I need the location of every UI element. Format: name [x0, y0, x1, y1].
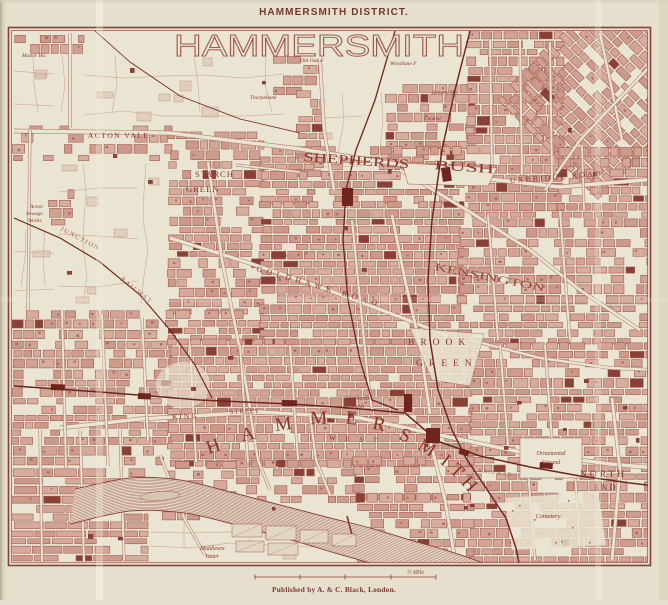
svg-text:M: M [274, 413, 293, 436]
svg-text:Manor Ho.: Manor Ho. [21, 53, 46, 59]
svg-text:STREET: STREET [230, 408, 260, 416]
svg-text:Bush: Bush [352, 404, 364, 410]
svg-text:Thorpebank: Thorpebank [250, 95, 277, 101]
svg-text:NORTH: NORTH [580, 470, 627, 480]
svg-text:Ground: Ground [542, 460, 561, 466]
svg-text:BROOK: BROOK [408, 338, 471, 348]
svg-text:KING: KING [172, 411, 199, 421]
svg-text:Cemetery: Cemetery [536, 513, 561, 520]
svg-text:½ Mile: ½ Mile [407, 569, 424, 576]
svg-text:Middlesex: Middlesex [199, 546, 225, 552]
svg-text:E: E [345, 408, 358, 430]
svg-text:Ornamental: Ornamental [537, 451, 566, 457]
svg-text:Sewage: Sewage [26, 211, 43, 217]
svg-text:Old Oak F: Old Oak F [300, 58, 324, 64]
svg-text:STARCH: STARCH [195, 169, 234, 179]
svg-text:GREEN: GREEN [186, 184, 219, 194]
svg-text:Shepherds: Shepherds [345, 396, 370, 402]
svg-text:HAMMERSMITH DISTRICT.: HAMMERSMITH DISTRICT. [259, 7, 409, 18]
svg-text:Water: Water [205, 554, 220, 560]
svg-text:Published by A. & C. Black, Lo: Published by A. & C. Black, London. [272, 586, 396, 594]
svg-text:GREEN: GREEN [416, 359, 478, 369]
svg-text:Woodlane F: Woodlane F [390, 61, 417, 67]
svg-text:M: M [310, 408, 328, 430]
svg-text:Works: Works [28, 218, 42, 224]
svg-text:Central: Central [424, 116, 441, 122]
svg-text:Benami Ho: Benami Ho [432, 90, 457, 96]
svg-text:Acton: Acton [29, 204, 43, 210]
